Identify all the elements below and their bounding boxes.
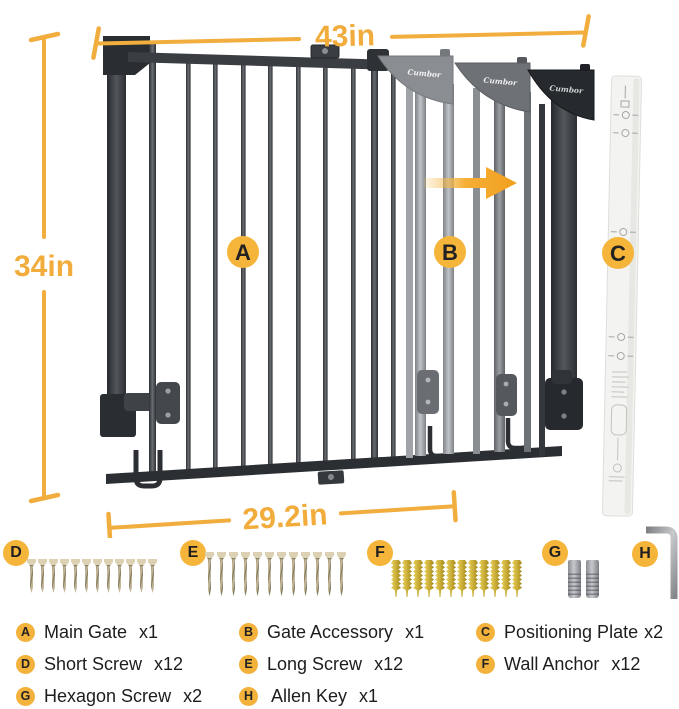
short-screw	[137, 559, 146, 593]
width-label: 43in	[315, 19, 376, 53]
dimension-width: 43in	[93, 14, 590, 58]
legend-item-gate-accessory: B Gate Accessory x1	[239, 621, 424, 643]
part-qty: x12	[154, 654, 183, 675]
long-screw	[241, 552, 250, 596]
wall-anchors	[391, 560, 522, 597]
wall-anchor	[435, 560, 445, 597]
wall-anchor	[457, 560, 467, 597]
wall-anchor	[402, 560, 412, 597]
legend-badge-d: D	[16, 655, 35, 674]
callout-d: D	[3, 540, 29, 566]
legend-badge-h: H	[239, 687, 258, 706]
part-qty: x1	[139, 622, 158, 643]
callout-b: B	[434, 236, 466, 268]
legend-badge-c: C	[476, 623, 495, 642]
callout-g: G	[542, 540, 568, 566]
short-screws	[27, 559, 157, 593]
part-name: Hexagon Screw	[44, 686, 171, 707]
frame-bar	[149, 44, 156, 480]
legend-item-long-screw: E Long Screw x12	[239, 653, 403, 675]
callout-a-letter: A	[235, 240, 251, 265]
part-name: Long Screw	[267, 654, 362, 675]
long-screw	[277, 552, 286, 596]
long-screw	[217, 552, 226, 596]
part-name: Allen Key	[271, 686, 347, 707]
hexagon-screw	[586, 560, 599, 598]
wall-anchor	[512, 560, 522, 597]
long-screw	[253, 552, 262, 596]
wall-anchor	[424, 560, 434, 597]
legend-badge-b: B	[239, 623, 258, 642]
legend-badge-g: G	[16, 687, 35, 706]
bottom-joint-plate	[318, 470, 345, 485]
hexagon-screws	[568, 560, 599, 598]
part-name: Wall Anchor	[504, 654, 599, 675]
long-screw	[289, 552, 298, 596]
part-qty: x1	[359, 686, 378, 707]
legend-badge-f: F	[476, 655, 495, 674]
short-screw	[115, 559, 124, 593]
height-label: 34in	[14, 250, 74, 283]
short-screw	[38, 559, 47, 593]
short-screw	[104, 559, 113, 593]
part-qty: x2	[644, 622, 663, 643]
legend-item-short-screw: D Short Screw x12	[16, 653, 183, 675]
wall-anchor	[501, 560, 511, 597]
long-screw	[229, 552, 238, 596]
callout-a: A	[227, 236, 259, 268]
gate-illustration: 34in	[0, 0, 679, 538]
short-screw	[27, 559, 36, 593]
legend-item-positioning-plate: C Positioning Plate x2	[476, 621, 663, 643]
long-screw	[313, 552, 322, 596]
long-screw	[265, 552, 274, 596]
accessory-section-3: Cumbor	[528, 64, 594, 456]
short-screw	[60, 559, 69, 593]
accessory-section-2: Cumbor	[455, 57, 531, 454]
wall-anchor	[468, 560, 478, 597]
long-screw	[301, 552, 310, 596]
legend-item-wall-anchor: F Wall Anchor x12	[476, 653, 640, 675]
gate-bars	[186, 58, 396, 471]
opening-label: 29.2in	[242, 498, 329, 536]
callout-e: E	[180, 540, 206, 566]
legend-badge-e: E	[239, 655, 258, 674]
left-wall-post	[107, 44, 126, 436]
wall-anchor	[490, 560, 500, 597]
part-qty: x12	[611, 654, 640, 675]
short-screw	[148, 559, 157, 593]
part-qty: x12	[374, 654, 403, 675]
short-screw	[126, 559, 135, 593]
hexagon-screw	[568, 560, 581, 598]
part-qty: x2	[183, 686, 202, 707]
wall-anchor	[446, 560, 456, 597]
legend-item-main-gate: A Main Gate x1	[16, 621, 158, 643]
dimension-opening: 29.2in	[108, 490, 455, 538]
long-screws	[205, 552, 346, 596]
short-screw	[93, 559, 102, 593]
part-name: Gate Accessory	[267, 622, 393, 643]
callout-c-letter: C	[610, 241, 626, 266]
legend-item-hexagon-screw: G Hexagon Screw x2	[16, 685, 202, 707]
long-screw	[325, 552, 334, 596]
wall-anchor	[391, 560, 401, 597]
part-name: Short Screw	[44, 654, 142, 675]
part-name: Main Gate	[44, 622, 127, 643]
product-diagram: 34in	[0, 0, 679, 709]
latch-side-bar	[371, 52, 378, 460]
dimension-height: 34in	[14, 34, 74, 501]
callout-c: C	[602, 237, 634, 269]
callout-f: F	[367, 540, 393, 566]
main-gate	[100, 36, 562, 486]
long-screw	[205, 552, 214, 596]
wall-anchor	[413, 560, 423, 597]
gate-accessory: Cumbor Cumbor Cumbor	[378, 49, 594, 458]
legend-item-allen-key: H Allen Key x1	[239, 685, 378, 707]
wall-anchor	[479, 560, 489, 597]
short-screw	[71, 559, 80, 593]
part-name: Positioning Plate	[504, 622, 638, 643]
allen-key	[642, 521, 679, 603]
positioning-plate: 34in	[602, 76, 679, 523]
legend-badge-a: A	[16, 623, 35, 642]
short-screw	[49, 559, 58, 593]
part-qty: x1	[405, 622, 424, 643]
callout-b-letter: B	[442, 240, 458, 265]
long-screw	[337, 552, 346, 596]
short-screw	[82, 559, 91, 593]
